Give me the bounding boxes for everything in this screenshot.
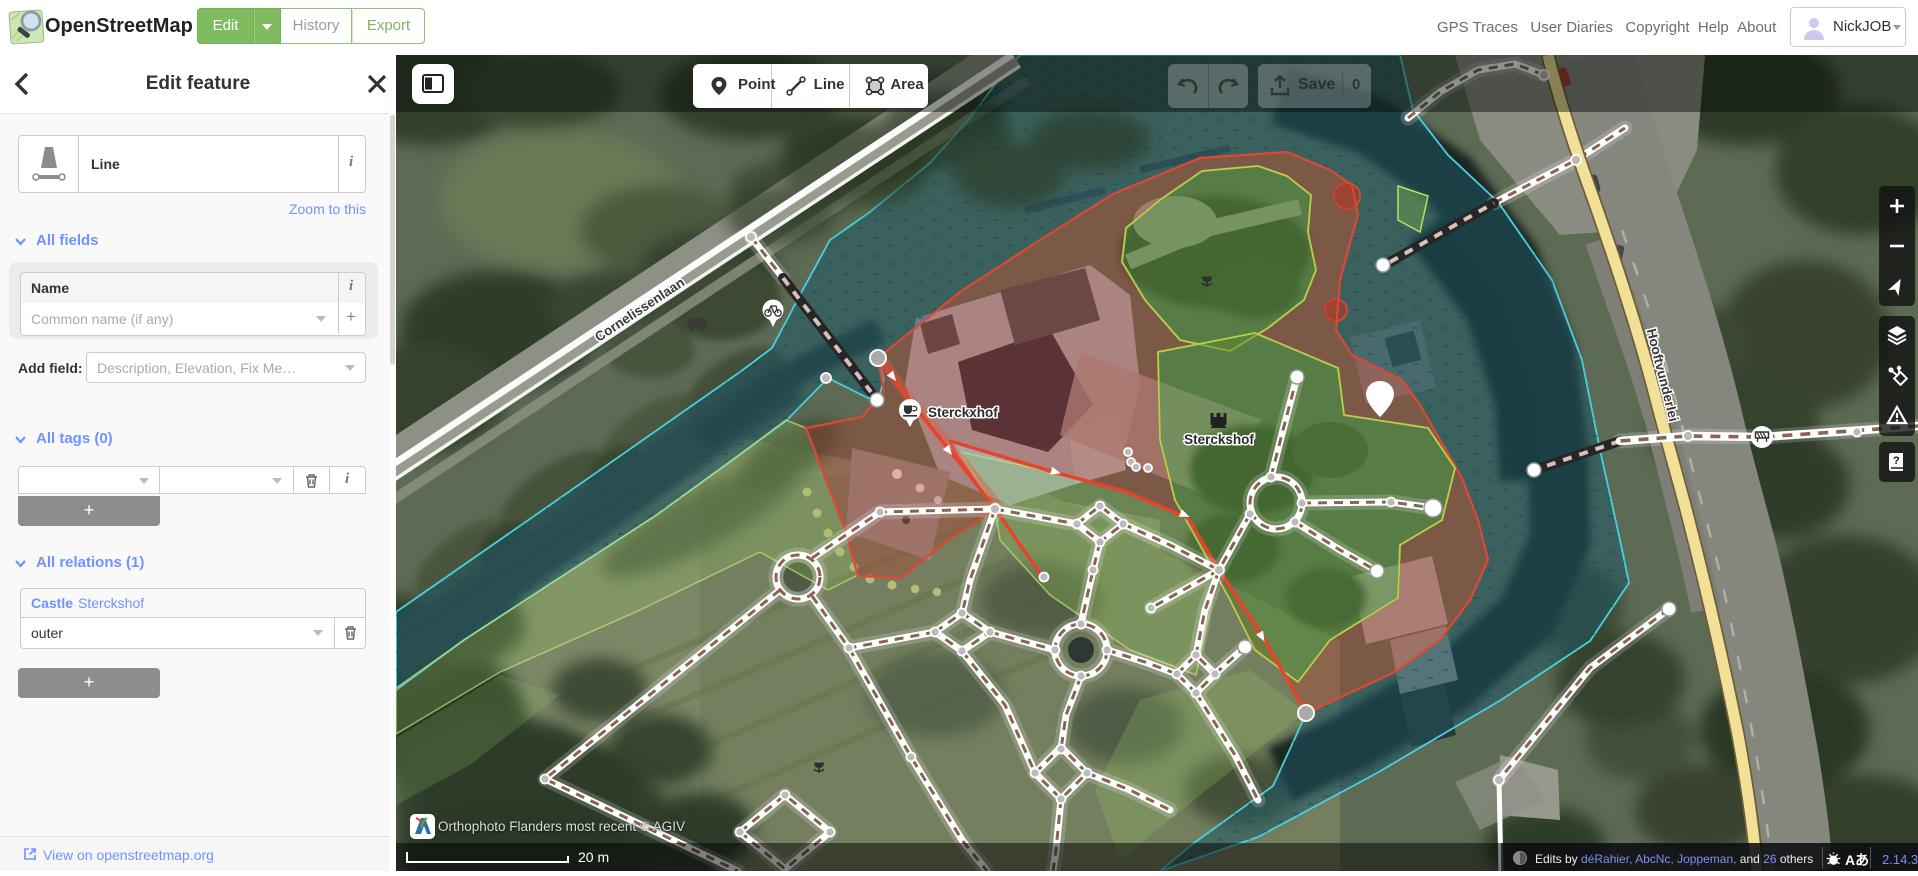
svg-text:?: ?	[1893, 455, 1900, 467]
svg-text:Sterckxhof: Sterckxhof	[928, 405, 998, 420]
svg-text:Sterckshof: Sterckshof	[1184, 432, 1254, 447]
